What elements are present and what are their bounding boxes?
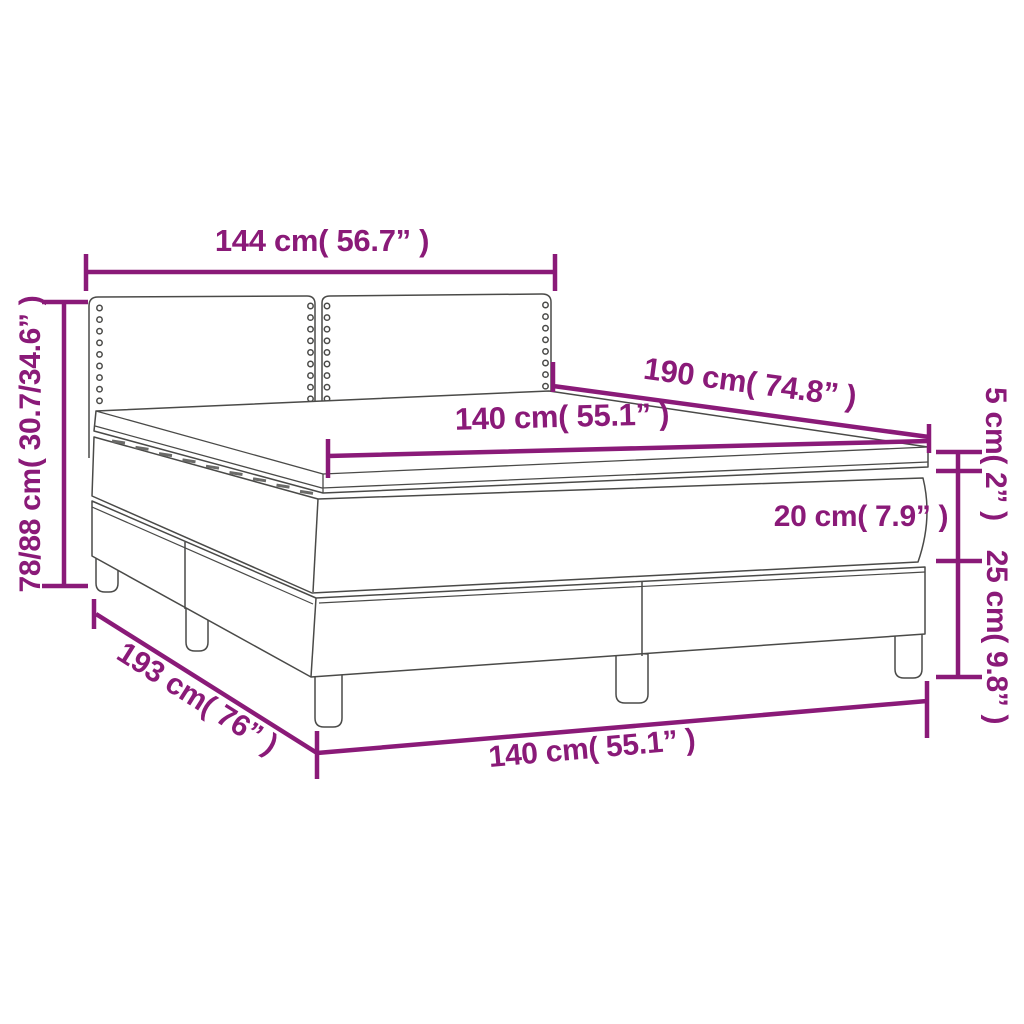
stitch-dash xyxy=(253,479,266,481)
stud-icon xyxy=(543,314,548,319)
bed-leg xyxy=(315,672,342,727)
stitch-dash xyxy=(300,491,313,493)
stud-icon xyxy=(324,338,329,343)
stud-icon xyxy=(97,375,102,380)
stud-icon xyxy=(543,372,548,377)
stud-icon xyxy=(308,385,313,390)
stud-icon xyxy=(543,349,548,354)
dimension-label-base-height: 25 cm( 9.8” ) xyxy=(979,550,1013,725)
stud-icon xyxy=(543,337,548,342)
dimension-label-overall-height: 78/88 cm( 30.7/34.6” ) xyxy=(14,296,48,593)
stud-icon xyxy=(97,387,102,392)
stud-icon xyxy=(308,373,313,378)
stud-icon xyxy=(97,305,102,310)
stud-icon xyxy=(97,352,102,357)
dimension-label-headboard-width: 144 cm( 56.7” ) xyxy=(215,223,429,259)
stud-icon xyxy=(97,398,102,403)
stitch-dash xyxy=(159,454,172,456)
stud-icon xyxy=(308,350,313,355)
stud-icon xyxy=(324,373,329,378)
dimension-diagram: 144 cm( 56.7” ) 78/88 cm( 30.7/34.6” ) 1… xyxy=(0,0,1024,1024)
stud-icon xyxy=(97,340,102,345)
stud-icon xyxy=(543,384,548,389)
stitch-dash xyxy=(112,441,125,443)
stud-icon xyxy=(308,338,313,343)
stud-icon xyxy=(543,326,548,331)
stitch-dash xyxy=(183,460,196,462)
bed-leg xyxy=(616,652,648,703)
dimension-line-right-heights xyxy=(936,452,982,677)
stud-icon xyxy=(324,350,329,355)
stud-icon xyxy=(324,327,329,332)
stud-icon xyxy=(324,303,329,308)
dimension-label-mattress-width: 140 cm( 55.1” ) xyxy=(454,396,669,438)
stud-icon xyxy=(308,396,313,401)
dimension-line-overall-height xyxy=(42,302,88,586)
stud-icon xyxy=(543,302,548,307)
stitch-dash xyxy=(206,466,219,468)
stitch-dash xyxy=(277,485,290,487)
stud-icon xyxy=(324,385,329,390)
stud-icon xyxy=(97,317,102,322)
dimension-line-headboard-width xyxy=(86,254,555,291)
stud-icon xyxy=(308,315,313,320)
dimension-label-mattress-thickness: 20 cm( 7.9” ) xyxy=(774,500,949,534)
stitch-dash xyxy=(230,473,243,475)
stud-icon xyxy=(308,303,313,308)
stud-icon xyxy=(324,315,329,320)
stud-icon xyxy=(543,360,548,365)
stud-icon xyxy=(97,329,102,334)
dimension-label-topper-thickness: 5 cm( 2” ) xyxy=(978,387,1012,521)
stud-icon xyxy=(308,361,313,366)
stitch-dash xyxy=(136,447,149,449)
stud-icon xyxy=(324,361,329,366)
stud-icon xyxy=(308,327,313,332)
stud-icon xyxy=(97,363,102,368)
